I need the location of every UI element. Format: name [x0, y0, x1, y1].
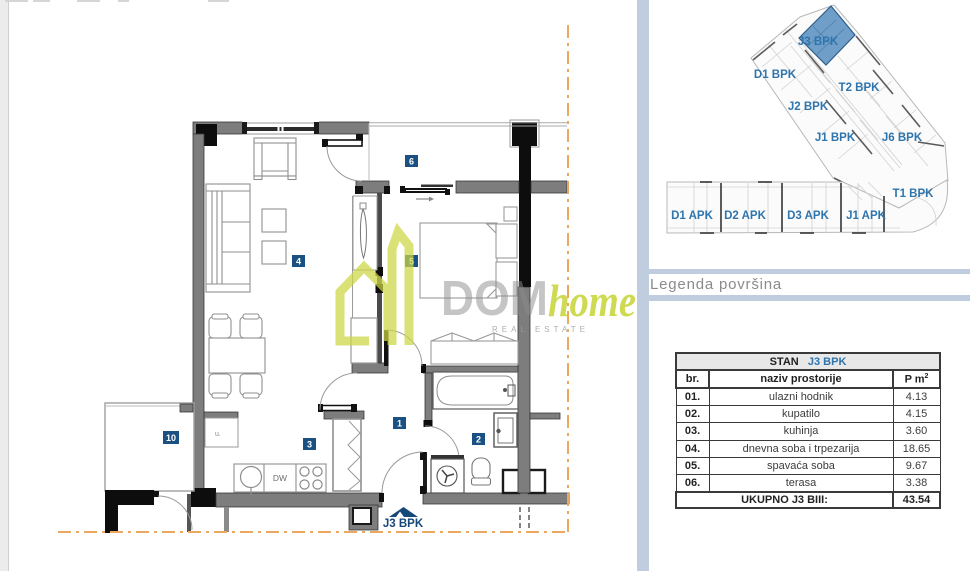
svg-text:10: 10 — [166, 433, 176, 443]
svg-text:J2 BPK: J2 BPK — [788, 101, 829, 113]
svg-text:6: 6 — [409, 157, 414, 167]
svg-text:J3 BPK: J3 BPK — [798, 36, 839, 48]
svg-text:T1 BPK: T1 BPK — [893, 188, 935, 200]
svg-text:3: 3 — [307, 440, 312, 450]
svg-text:REAL ESTATE: REAL ESTATE — [492, 325, 585, 334]
svg-text:J1 BPK: J1 BPK — [815, 132, 856, 144]
svg-text:D2 APK: D2 APK — [724, 210, 766, 222]
svg-text:J1 APK: J1 APK — [846, 210, 887, 222]
svg-text:u.: u. — [215, 431, 221, 438]
svg-text:4: 4 — [296, 257, 301, 267]
svg-text:1: 1 — [397, 419, 402, 429]
svg-text:J6 BPK: J6 BPK — [882, 132, 923, 144]
svg-text:T2 BPK: T2 BPK — [839, 82, 881, 94]
svg-text:2: 2 — [476, 435, 481, 445]
svg-text:D1 APK: D1 APK — [671, 210, 713, 222]
svg-text:J3 BPK: J3 BPK — [383, 518, 424, 530]
svg-text:D3 APK: D3 APK — [787, 210, 829, 222]
svg-text:D1 BPK: D1 BPK — [754, 69, 797, 81]
svg-text:DOM: DOM — [441, 272, 548, 326]
svg-text:home: home — [548, 275, 636, 326]
svg-text:DW: DW — [273, 473, 287, 483]
